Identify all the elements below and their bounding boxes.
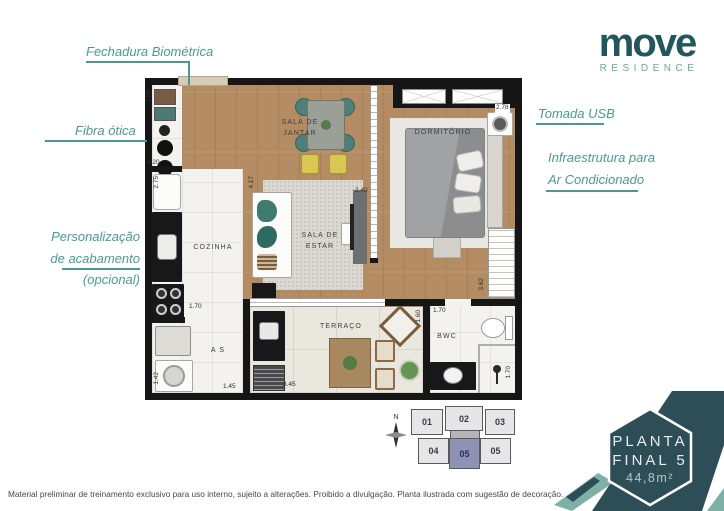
room-label-laundry: A S bbox=[200, 346, 236, 357]
annotation-underline bbox=[86, 61, 190, 63]
entry-picture bbox=[154, 89, 176, 105]
room-label-bedroom: DORMITÓRIO bbox=[410, 128, 476, 139]
measurement: 4.17 bbox=[249, 176, 256, 189]
laundry-tank bbox=[155, 326, 191, 356]
room-label-line: ESTAR bbox=[292, 242, 348, 253]
badge-title-line1: PLANTA bbox=[612, 433, 687, 450]
annotation-connector-line bbox=[188, 61, 190, 85]
room-label-living: SALA DE ESTAR bbox=[292, 231, 348, 252]
compass-north-icon bbox=[385, 422, 407, 448]
stove-burner bbox=[170, 288, 181, 299]
room-label-line: SALA DE bbox=[272, 118, 328, 129]
keyplan-unit-01: 01 bbox=[411, 409, 443, 435]
disclaimer-text: Material preliminar de treinamento exclu… bbox=[8, 489, 563, 499]
floor-plan: SALA DE JANTAR DORMITÓRIO COZINHA SALA D… bbox=[145, 78, 522, 400]
yellow-chair bbox=[301, 154, 319, 174]
logo-subtitle: RESIDENCE bbox=[592, 63, 702, 74]
annotation-biometric-lock: Fechadura Biométrica bbox=[86, 44, 213, 60]
logo: move RESIDENCE bbox=[592, 26, 702, 74]
bedroom-window bbox=[452, 89, 503, 104]
headboard-bench bbox=[487, 130, 503, 228]
badge-title-line2: FINAL 5 bbox=[612, 452, 687, 469]
shower-glass bbox=[478, 344, 480, 393]
washing-machine-door bbox=[163, 365, 185, 387]
tv-screen bbox=[350, 204, 354, 250]
bed-pillow bbox=[454, 172, 482, 194]
annotation-custom-finish-line3: (opcional) bbox=[0, 272, 140, 288]
measurement: 1.58 bbox=[146, 90, 153, 103]
wall-left bbox=[145, 78, 152, 400]
terrace-sink bbox=[259, 322, 279, 340]
room-label-terrace: TERRAÇO bbox=[313, 322, 369, 333]
terrace-plant bbox=[401, 362, 418, 379]
annotation-underline bbox=[45, 140, 147, 142]
annotation-underline bbox=[62, 268, 140, 270]
stove-burner bbox=[156, 288, 167, 299]
entry-kitchen-wall-stub bbox=[152, 166, 182, 172]
yellow-chair bbox=[329, 154, 347, 174]
kitchen-laundry-wall-stub bbox=[152, 317, 185, 323]
bathroom-door-opening bbox=[445, 299, 471, 306]
measurement: 2.40 bbox=[355, 188, 368, 195]
ceiling-spot bbox=[157, 140, 173, 156]
keyplan-unit-04: 04 bbox=[418, 438, 449, 464]
stove-burner bbox=[170, 304, 181, 315]
measurement: 1.70 bbox=[189, 304, 202, 311]
annotation-ac-infra-line2: Ar Condicionado bbox=[548, 172, 644, 188]
annotation-custom-finish-line1: Personalização bbox=[0, 229, 140, 245]
bed-pillow bbox=[452, 195, 481, 214]
measurement: 1.60 bbox=[416, 310, 423, 323]
keyplan-unit-06: 05 bbox=[480, 438, 511, 464]
terrace-bathroom-wall bbox=[423, 299, 430, 393]
bedroom-window bbox=[402, 89, 446, 104]
room-label-dining: SALA DE JANTAR bbox=[272, 118, 328, 139]
compass-north-label: N bbox=[384, 414, 408, 421]
keyplan-unit-05-highlighted: 05 bbox=[449, 438, 480, 469]
annotation-fiber-optic: Fibra ótica bbox=[75, 123, 136, 139]
room-label-kitchen: COZINHA bbox=[185, 243, 241, 254]
terrace-table-plant bbox=[343, 356, 357, 370]
toilet-tank bbox=[505, 316, 513, 340]
annotation-underline bbox=[546, 190, 638, 192]
room-divider-shelf bbox=[370, 85, 378, 261]
room-label-line: SALA DE bbox=[292, 231, 348, 242]
measurement: 4.20 bbox=[147, 160, 160, 167]
measurement: 1.42 bbox=[154, 372, 161, 385]
keyplan-unit-03: 03 bbox=[485, 409, 515, 435]
stove-burner bbox=[156, 304, 167, 315]
measurement: 2.78 bbox=[495, 104, 510, 113]
badge-area: 44,8m² bbox=[626, 471, 674, 485]
entry-picture bbox=[154, 107, 176, 121]
annotation-custom-finish-line2: de acabamento bbox=[0, 251, 140, 267]
ceiling-spot bbox=[159, 125, 170, 136]
measurement: 1.70 bbox=[433, 308, 446, 315]
wall-right bbox=[515, 78, 522, 400]
closet bbox=[488, 228, 515, 298]
laundry-terrace-wall bbox=[243, 299, 250, 393]
keyplan-unit-02: 02 bbox=[445, 406, 483, 431]
annotation-ac-infra-line1: Infraestrutura para bbox=[548, 150, 655, 166]
measurement: 3.45 bbox=[283, 382, 296, 389]
shower-glass bbox=[478, 344, 515, 346]
annotation-usb-outlet: Tomada USB bbox=[538, 106, 615, 122]
terrace-sliding-door bbox=[250, 298, 385, 307]
shower-stem bbox=[496, 372, 498, 384]
bathroom-basin bbox=[443, 367, 463, 384]
room-label-line: JANTAR bbox=[272, 129, 328, 140]
striped-pillow bbox=[257, 254, 277, 270]
brochure-page: move RESIDENCE Fechadura Biométrica Fibr… bbox=[0, 0, 724, 511]
measurement: 2.75 bbox=[154, 176, 161, 189]
plan-badge-graphic: PLANTA FINAL 5 44,8m² bbox=[540, 385, 724, 511]
entrance-door bbox=[178, 76, 228, 86]
toilet bbox=[481, 318, 505, 338]
terrace-chair bbox=[375, 340, 395, 362]
logo-wordmark: move bbox=[592, 26, 702, 60]
keyplan: N 01 02 03 04 05 05 bbox=[378, 406, 526, 480]
kitchen-sink bbox=[157, 234, 177, 260]
measurement: 1.45 bbox=[223, 384, 236, 391]
measurement: 1.70 bbox=[506, 366, 513, 379]
annotation-underline bbox=[536, 123, 604, 125]
tv-panel bbox=[353, 190, 367, 264]
measurement: 3.62 bbox=[479, 278, 486, 291]
room-label-bathroom: BWC bbox=[429, 332, 465, 343]
badge-light-corner bbox=[707, 488, 724, 511]
terrace-chair bbox=[375, 368, 395, 390]
divider-wall-cap bbox=[370, 258, 378, 263]
wall-bottom bbox=[145, 393, 522, 400]
grill bbox=[253, 365, 285, 391]
ac-fan-icon bbox=[492, 116, 508, 132]
sofa-pillow bbox=[257, 200, 277, 222]
